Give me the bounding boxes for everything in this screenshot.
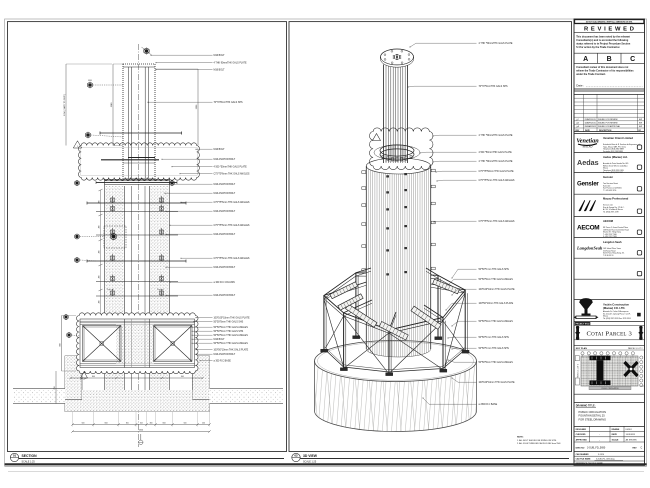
svg-text:EW: EW [639,126,642,128]
svg-text:4 THK 90mmTHK GALS PLATE: 4 THK 90mmTHK GALS PLATE [214,62,247,65]
svg-text:status referred to in Proj: status referred to in Project Procedure … [576,43,631,46]
svg-text:LangdonSeah: LangdonSeah [576,246,603,251]
svg-text:REFERENCE CAD FILE NAME: REFERENCE CAD FILE NAME [576,462,604,465]
svg-text:relieve the Trade Contracto: relieve the Trade Contractor of its resp… [576,69,634,72]
svg-text:FOR STEEL DRAWING: FOR STEEL DRAWING [579,417,606,421]
svg-text:300: 300 [98,301,100,304]
svg-text:50*50*5mm THK GALS ANGLES: 50*50*5mm THK GALS ANGLES [214,334,249,337]
svg-text:PARCEL 3, LOT 2: PARCEL 3, LOT 2 [628,347,642,350]
svg-text:NOTE:: NOTE: [517,437,524,439]
svg-text:2. ALL FILLET WELDED SHOULD BE: 2. ALL FILLET WELDED SHOULD BE 3mm THK. [517,442,561,445]
svg-text:a 300 R.C BASE: a 300 R.C BASE [214,360,232,363]
svg-text:Tel: (853) 2870 3313 Fax: 287: Tel: (853) 2870 3313 Fax: 2870 3314 [603,318,631,320]
svg-text:M16 ANCHOR BOLT: M16 ANCHOR BOLT [214,210,236,213]
svg-text:100*100*10mm THK GALS PLATE: 100*100*10mm THK GALS PLATE [479,288,515,291]
svg-text:ISSUED FOR REVIEW: ISSUED FOR REVIEW [598,123,618,125]
svg-text:SECTION: SECTION [22,454,38,458]
svg-text:APPROVED: APPROVED [576,438,588,441]
svg-text:3-SUB_FD_5690: 3-SUB_FD_5690 [587,446,606,449]
svg-text:4 THK *50mmTHK GALS PLATE: 4 THK *50mmTHK GALS PLATE [479,160,513,163]
svg-text:300: 300 [98,226,100,229]
svg-text:100*100*10mm THK GALS PLATE: 100*100*10mm THK GALS PLATE [214,317,250,320]
svg-text:C: C [641,446,643,449]
svg-text:R E V I E W E D: R E V I E W E D [584,26,634,32]
svg-text:M16 ANCHOR BOLT: M16 ANCHOR BOLT [214,183,236,186]
svg-text:300: 300 [98,251,100,254]
svg-text:DWG NO: DWG NO [576,447,585,449]
svg-text:DRAWN: DRAWN [612,428,620,431]
svg-text:EW: EW [639,123,642,125]
svg-text:162: 162 [140,423,143,425]
svg-text:1784 ( VARY TO SUIT ): 1784 ( VARY TO SUIT ) [63,94,66,116]
svg-text:M16 ANCHOR BOLT: M16 ANCHOR BOLT [214,233,236,236]
svg-text:4 500 *50mmTHK GALS PLATE: 4 500 *50mmTHK GALS PLATE [214,166,248,169]
svg-text:AECOM: AECOM [603,219,614,223]
svg-text:C75*75*6mm THK GALS ANGLES: C75*75*6mm THK GALS ANGLES [214,224,250,227]
svg-text:under the Trade Contract.: under the Trade Contract. [576,73,606,76]
svg-text:M16 ANCHOR BOLT: M16 ANCHOR BOLT [214,266,236,269]
svg-text:M16 BOLT: M16 BOLT [214,55,226,57]
svg-text:300: 300 [150,423,153,425]
svg-text:844: 844 [92,376,95,378]
svg-text:500: 500 [184,423,187,425]
svg-text:PROJECT TITLE: PROJECT TITLE [576,324,591,326]
svg-text:50*50*5 mm THK GALS SHS: 50*50*5 mm THK GALS SHS [479,336,510,339]
svg-text:Consultants(s) and is accor: Consultants(s) and is accorded the follo… [576,39,629,42]
svg-text:FOUNTAIN DETAIL 25: FOUNTAIN DETAIL 25 [579,414,606,418]
svg-text:Langdon Seah: Langdon Seah [603,240,622,244]
svg-text:C75*75*50mm THK GALS PLATE: C75*75*50mm THK GALS PLATE [479,170,515,173]
svg-text:50*50*5mm THK GALS ANGLES: 50*50*5mm THK GALS ANGLES [479,278,514,281]
svg-text:10/APR/2015: 10/APR/2015 [585,122,596,125]
svg-text:ISSUED FOR REVIEW: ISSUED FOR REVIEW [598,119,618,121]
svg-text:C75*75*6mm THK GALS ANGLES: C75*75*6mm THK GALS ANGLES [214,201,250,204]
svg-text:PUBLIC CIRCULATION: PUBLIC CIRCULATION [579,410,607,414]
svg-text:3D VIEW: 3D VIEW [303,454,318,458]
svg-text:Cotai Parcel 3: Cotai Parcel 3 [587,330,633,337]
svg-text:50*50*5mm THK GALS ANGLES: 50*50*5mm THK GALS ANGLES [214,342,249,345]
svg-text:T 28 30 33 99: T 28 30 33 99 [603,255,613,257]
svg-text:900: 900 [59,343,61,346]
svg-text:3-1326: 3-1326 [598,454,604,456]
svg-text:300: 300 [126,423,129,425]
svg-text:ISSUED FOR APPROVAL: ISSUED FOR APPROVAL [598,125,620,128]
svg-text:100*50*10mm THK GALS PLATE: 100*50*10mm THK GALS PLATE [214,349,249,352]
svg-text:DATE: DATE [612,433,618,436]
svg-text:844: 844 [181,376,184,378]
svg-text:Tel. (853) 2871 2378: Tel. (853) 2871 2378 [603,211,619,213]
svg-text:REV: REV [633,447,638,449]
svg-text:KEY PLAN: KEY PLAN [576,347,587,350]
svg-text:01: 01 [13,453,17,457]
svg-text:50*50*5mm THK GALS SHS: 50*50*5mm THK GALS SHS [214,330,244,333]
svg-text:SCALE 1:25: SCALE 1:25 [303,460,317,463]
svg-text:SCALE 1:25: SCALE 1:25 [22,460,36,463]
svg-text:Gensler: Gensler [603,175,613,179]
svg-text:CAD FILE NAME: CAD FILE NAME [576,458,592,461]
svg-text:C75*75*5mm THK GALS ANGLES: C75*75*5mm THK GALS ANGLES [479,179,515,182]
svg-text:300: 300 [98,201,100,204]
svg-text:A: A [583,56,588,63]
svg-text:Macau Professional: Macau Professional [603,196,628,200]
svg-text:Prep. ref: Prep. ref [157,288,164,291]
svg-text:1. ALL BOLT SHOULD BE FIXING O: 1. ALL BOLT SHOULD BE FIXING ON SITE. [517,439,557,442]
svg-text:4 THK *50mmTHK GALS PLATE: 4 THK *50mmTHK GALS PLATE [479,42,513,45]
svg-text:4 THK *50mmTHK GALS PLATE: 4 THK *50mmTHK GALS PLATE [479,134,513,137]
svg-text:4 500 *50mmTHK GALS PLATE: 4 500 *50mmTHK GALS PLATE [479,151,513,154]
svg-text:02: 02 [294,453,298,457]
svg-text:2350: 2350 [139,430,143,432]
svg-text:Aedas (Macau) Ltd.: Aedas (Macau) Ltd. [603,155,628,159]
svg-text:T 1 415 433 3700: T 1 415 433 3700 [603,190,616,192]
svg-text:300: 300 [98,276,100,279]
svg-text:MACAO: MACAO [583,145,593,148]
svg-text:M16 ANCHOR BOLT: M16 ANCHOR BOLT [214,192,236,195]
svg-text:a 2500 R.C BASE: a 2500 R.C BASE [479,403,498,406]
svg-text:50*50*5mm THK GALS ANGLES: 50*50*5mm THK GALS ANGLES [214,326,249,329]
svg-text:Date :: Date : [576,84,584,88]
svg-text:Consultant review of this: Consultant review of this document does … [576,66,628,69]
svg-text:100*50*10mm THK GALS PLATE: 100*50*10mm THK GALS PLATE [479,302,514,305]
svg-text:DRAWING TITLE:: DRAWING TITLE: [576,405,596,408]
svg-text:M16 ANCHOR BOLT: M16 ANCHOR BOLT [214,294,236,297]
svg-text:M16 BOLT: M16 BOLT [214,339,226,341]
svg-text:5.4 for action by the Tra: 5.4 for action by the Trade Contractor. [576,46,620,49]
svg-text:M16 ANCHOR BOLT: M16 ANCHOR BOLT [214,353,236,356]
svg-text:DESIGNED: DESIGNED [576,429,587,431]
svg-text:70*70*5mmTHK GALS SHS: 70*70*5mmTHK GALS SHS [479,85,509,88]
svg-text:Yeckin Construction: Yeckin Construction [603,302,629,306]
svg-text:CAD NUMBER: CAD NUMBER [576,453,590,456]
svg-text:Prep. ref: Prep. ref [107,288,114,291]
svg-text:Gensler: Gensler [577,181,599,188]
svg-text:500: 500 [82,423,85,425]
svg-text:Venetian Orient Limited: Venetian Orient Limited [603,136,633,140]
svg-text:This document has been not: This document has been noted by the rele… [576,35,630,38]
svg-text:844: 844 [163,423,166,425]
svg-text:70*70*8mmTHK GALS SHS: 70*70*8mmTHK GALS SHS [214,101,244,104]
svg-text:28/MAR/2015: 28/MAR/2015 [585,125,597,128]
svg-text:750: 750 [54,386,56,389]
svg-text:50*50*5 mm THK GALS SHS: 50*50*5 mm THK GALS SHS [479,268,510,271]
svg-text:14/JUN/15: 14/JUN/15 [626,434,636,436]
svg-text:LW/KO: LW/KO [626,429,633,431]
svg-text:C75*75*6mm THK GALS ANGLES: C75*75*6mm THK GALS ANGLES [214,173,250,176]
svg-text:844: 844 [105,423,108,425]
svg-text:C75*75*6mm THK GALS ANGLES: C75*75*6mm THK GALS ANGLES [214,257,250,260]
svg-text:SCALE: SCALE [612,438,619,441]
svg-text:AECOM: AECOM [577,225,599,232]
svg-text:a 300 R.C COLUMN: a 300 R.C COLUMN [214,282,236,284]
svg-text:1: 1 [77,146,78,148]
svg-text:22/APR/2015: 22/APR/2015 [585,118,596,121]
svg-text:50*50*5mm THK GALS ANGLES: 50*50*5mm THK GALS ANGLES [479,361,514,364]
svg-text:50*50*5mm THK GALS ANGLES: 50*50*5mm THK GALS ANGLES [479,320,514,323]
svg-text:50*50*5mm THK GALS SHS: 50*50*5mm THK GALS SHS [214,321,244,324]
svg-text:M16: M16 [88,80,92,82]
svg-text:100*100*10mm THK GALS PLATE: 100*100*10mm THK GALS PLATE [479,381,515,384]
svg-text:EW: EW [639,119,642,121]
svg-text:AS SHOWN: AS SHOWN [626,438,637,441]
svg-text:200: 200 [202,423,205,425]
svg-text:C75*75*5mm THK GALS ANGLES: C75*75*5mm THK GALS ANGLES [479,220,515,223]
svg-text:B: B [607,56,612,63]
svg-text:Aedas: Aedas [577,158,599,167]
svg-text:C: C [630,56,635,63]
svg-text:M16 BOLT: M16 BOLT [214,70,226,72]
svg-text:CHECKED: CHECKED [576,434,586,436]
svg-text:PARCEL 3, LOT 1: PARCEL 3, LOT 1 [577,364,580,378]
svg-text:M16 ANCHOR BOLT: M16 ANCHOR BOLT [214,158,236,161]
svg-text:50*50*5 mm THK GALS SHS: 50*50*5 mm THK GALS SHS [479,347,510,350]
svg-text:(Macau) CO. LTD.: (Macau) CO. LTD. [603,306,625,310]
svg-text:M16 BOLT: M16 BOLT [214,149,226,151]
